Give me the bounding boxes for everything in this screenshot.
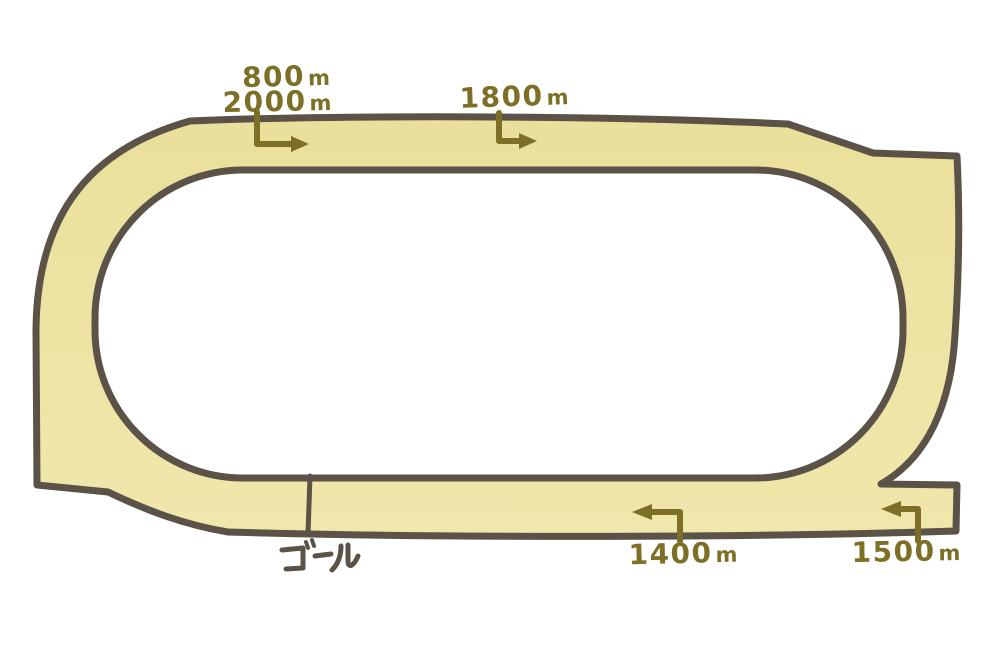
distance-value: 1800 [459, 79, 544, 115]
distance-value: 1500 [851, 534, 936, 568]
goal-label: ゴール [279, 540, 357, 577]
finish-line [308, 476, 310, 534]
distance-value: 2000 [222, 84, 307, 118]
distance-marker-1400m: 1400m [628, 539, 738, 570]
distance-unit: m [715, 543, 738, 568]
distance-unit: m [546, 85, 569, 110]
distance-marker-1500m: 1500m [851, 537, 960, 567]
distance-value: 1400 [628, 536, 713, 571]
distance-marker-1800m: 1800m [459, 81, 569, 113]
distance-unit: m [309, 91, 331, 115]
distance-marker-2000m: 2000m [222, 87, 331, 117]
distance-unit: m [938, 541, 960, 565]
racecourse-illustration: 800m 2000m 1800m 1400m 1500m ゴール [0, 0, 1000, 650]
track-infield [95, 170, 903, 478]
